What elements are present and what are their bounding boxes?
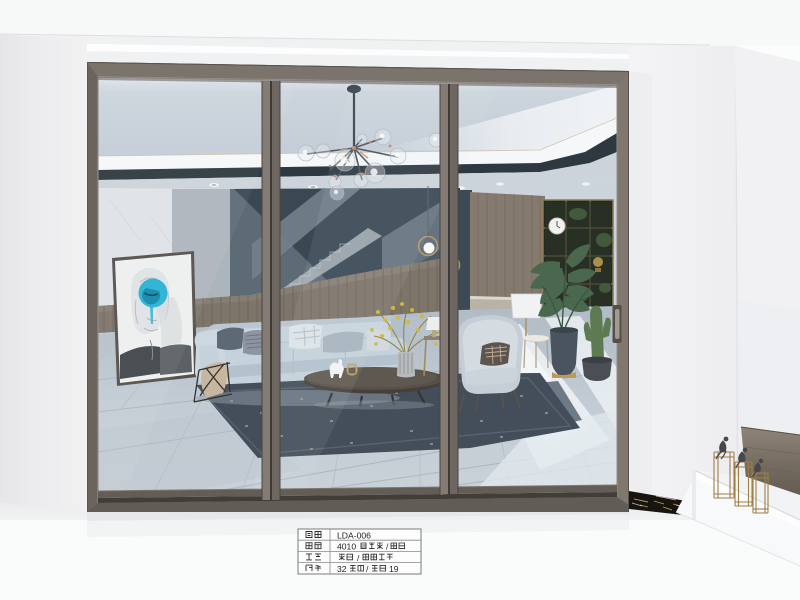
- svg-text:19: 19: [389, 564, 399, 574]
- svg-text:LDA-006: LDA-006: [337, 531, 371, 541]
- svg-text:32: 32: [337, 564, 347, 574]
- svg-text:4010: 4010: [337, 542, 356, 552]
